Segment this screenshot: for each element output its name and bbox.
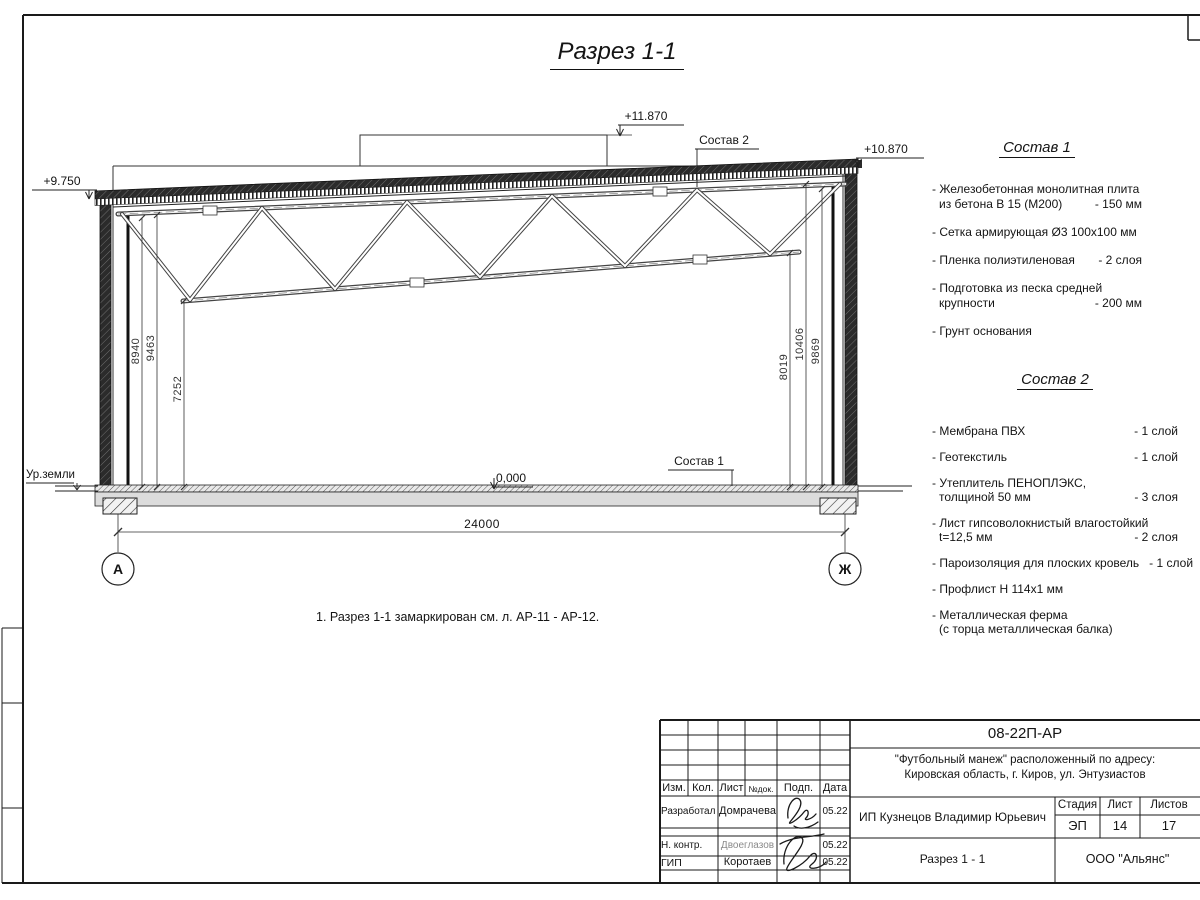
composition-row: - Утеплитель ПЕНОПЛЭКС, — [932, 476, 1178, 490]
composition-text: - Утеплитель ПЕНОПЛЭКС, — [932, 476, 1086, 490]
composition-row: - Железобетонная монолитная плита — [932, 182, 1142, 197]
composition-text: из бетона В 15 (М200) — [939, 197, 1062, 212]
composition-item: - Металлическая ферма(с торца металличес… — [932, 608, 1178, 636]
composition-item: - Профлист Н 114x1 мм — [932, 582, 1178, 596]
composition-row: крупности- 200 мм — [932, 296, 1142, 311]
composition-value: - 1 слой — [1124, 424, 1178, 438]
composition-row: - Профлист Н 114x1 мм — [932, 582, 1178, 596]
floor-slab — [55, 485, 912, 514]
dimension-right-3: 9869 — [810, 326, 822, 376]
elevation-label-parapet: +11.870 — [612, 109, 680, 123]
stamp-col-dok: №док. — [745, 784, 777, 794]
composition-text: - Пароизоляция для плоских кровель — [932, 556, 1139, 570]
stamp-sheets-value: 17 — [1140, 818, 1198, 833]
stamp-sheet-title: Разрез 1 - 1 — [850, 852, 1055, 866]
steel-truss — [118, 184, 845, 301]
stamp-sheets-label: Листов — [1140, 799, 1198, 811]
vertical-dimensions — [139, 181, 825, 490]
stamp-role-1: Н. контр. — [661, 840, 717, 851]
stamp-client: ИП Кузнецов Владимир Юрьевич — [850, 810, 1055, 824]
composition-item: - Пленка полиэтиленовая- 2 слоя — [932, 253, 1142, 268]
composition-row: - Лист гипсоволокнистый влагостойкий — [932, 516, 1178, 530]
stamp-col-list: Лист — [718, 782, 745, 794]
stamp-col-kol: Кол. — [688, 782, 718, 794]
composition-row: - Подготовка из песка средней — [932, 281, 1142, 296]
stamp-name-1: Двоеглазов — [718, 840, 777, 851]
composition-item: - Пароизоляция для плоских кровель- 1 сл… — [932, 556, 1178, 570]
composition-text: - Профлист Н 114x1 мм — [932, 582, 1063, 596]
dimension-left-3: 7252 — [172, 364, 184, 414]
composition-text: крупности — [939, 296, 995, 311]
composition-row: - Мембрана ПВХ- 1 слой — [932, 424, 1178, 438]
composition-item: - Грунт основания — [932, 324, 1142, 339]
stamp-sheet-label: Лист — [1100, 799, 1140, 811]
composition-text: - Грунт основания — [932, 324, 1032, 339]
composition-value: - 2 слоя — [1124, 530, 1178, 544]
page-title: Разрез 1-1 — [467, 38, 767, 70]
stamp-stage-label: Стадия — [1055, 799, 1100, 811]
composition-value: - 1 слой — [1139, 556, 1193, 570]
composition-item: - Мембрана ПВХ- 1 слой — [932, 424, 1178, 438]
composition-list-1: Состав 1 - Железобетонная монолитная пли… — [932, 140, 1142, 352]
stamp-name-2: Коротаев — [718, 856, 777, 868]
composition-text: - Лист гипсоволокнистый влагостойкий — [932, 516, 1148, 530]
signature-icon — [774, 830, 830, 878]
stamp-company: ООО "Альянс" — [1055, 852, 1200, 866]
composition-value: - 200 мм — [1085, 296, 1142, 311]
page-title-text: Разрез 1-1 — [550, 38, 685, 70]
signature-icon — [780, 792, 824, 832]
composition-text: - Пленка полиэтиленовая — [932, 253, 1075, 268]
composition-text: - Сетка армирующая Ø3 100x100 мм — [932, 225, 1137, 240]
composition-row: - Металлическая ферма — [932, 608, 1178, 622]
axis-circles — [102, 553, 861, 585]
stamp-name-0: Домрачева — [718, 805, 777, 817]
axis-label-left: А — [103, 561, 133, 577]
stamp-doc-number: 08-22П-АР — [850, 725, 1200, 742]
composition-item: - Геотекстиль- 1 слой — [932, 450, 1178, 464]
composition-text: - Металлическая ферма — [932, 608, 1068, 622]
composition-row: - Грунт основания — [932, 324, 1142, 339]
composition-item: - Сетка армирующая Ø3 100x100 мм — [932, 225, 1142, 240]
stamp-stage-value: ЭП — [1055, 818, 1100, 833]
note-text: 1. Разрез 1-1 замаркирован см. л. АР-11 … — [316, 610, 599, 624]
callout-sostav1: Состав 1 — [665, 454, 733, 468]
dimension-left-1: 8940 — [130, 326, 142, 376]
stamp-role-2: ГИП — [661, 857, 717, 869]
composition-item: - Утеплитель ПЕНОПЛЭКС,толщиной 50 мм- 3… — [932, 476, 1178, 504]
composition-row: толщиной 50 мм- 3 слоя — [932, 490, 1178, 504]
composition-text: t=12,5 мм — [939, 530, 993, 544]
composition-value: - 2 слоя — [1088, 253, 1142, 268]
composition-text: - Геотекстиль — [932, 450, 1007, 464]
composition-item: - Железобетонная монолитная плитаиз бето… — [932, 182, 1142, 212]
composition-item: - Лист гипсоволокнистый влагостойкийt=12… — [932, 516, 1178, 544]
composition-value: - 3 слоя — [1124, 490, 1178, 504]
composition-item: - Подготовка из песка среднейкрупности- … — [932, 281, 1142, 311]
composition-heading: Состав 1 — [932, 140, 1142, 158]
composition-row: - Пароизоляция для плоских кровель- 1 сл… — [932, 556, 1178, 570]
elevation-label-floor: 0,000 — [486, 471, 536, 485]
composition-heading-text: Состав 1 — [999, 140, 1075, 158]
elevation-label-roof-right: +10.870 — [852, 142, 920, 156]
dimension-span: 24000 — [450, 517, 514, 531]
composition-text: - Железобетонная монолитная плита — [932, 182, 1139, 197]
composition-row: из бетона В 15 (М200)- 150 мм — [932, 197, 1142, 212]
stamp-project-line1: "Футбольный манеж" расположенный по адре… — [850, 754, 1200, 766]
ground-level-label: Ур.земли — [26, 469, 75, 481]
composition-text: (с торца металлическая балка) — [939, 622, 1113, 636]
stamp-sheet-value: 14 — [1100, 818, 1140, 833]
composition-value: - 150 мм — [1085, 197, 1142, 212]
composition-row: - Пленка полиэтиленовая- 2 слоя — [932, 253, 1142, 268]
dimension-left-2: 9463 — [145, 323, 157, 373]
composition-value: - 1 слой — [1124, 450, 1178, 464]
stamp-col-izm: Изм. — [660, 782, 688, 794]
composition-text: - Мембрана ПВХ — [932, 424, 1025, 438]
stamp-project-line2: Кировская область, г. Киров, ул. Энтузиа… — [850, 769, 1200, 781]
dimension-right-2: 10406 — [794, 319, 806, 369]
composition-text: - Подготовка из песка средней — [932, 281, 1102, 296]
composition-heading-text: Состав 2 — [1017, 372, 1093, 390]
drawing-sheet: Разрез 1-1 +9.750 +11.870 +10.870 0,000 … — [0, 0, 1200, 900]
composition-heading: Состав 2 — [932, 372, 1178, 390]
elevation-label-roof-left: +9.750 — [30, 174, 94, 188]
composition-row: - Геотекстиль- 1 слой — [932, 450, 1178, 464]
composition-list-2: Состав 2 - Мембрана ПВХ- 1 слой- Геотекс… — [932, 372, 1178, 648]
composition-text: толщиной 50 мм — [939, 490, 1031, 504]
stamp-role-0: Разработал — [661, 806, 717, 817]
composition-row: - Сетка армирующая Ø3 100x100 мм — [932, 225, 1142, 240]
dimension-right-1: 8019 — [778, 342, 790, 392]
stamp-col-data: Дата — [820, 782, 850, 794]
composition-row: t=12,5 мм- 2 слоя — [932, 530, 1178, 544]
stamp-date-0: 05.22 — [820, 806, 850, 817]
composition-row: (с торца металлическая балка) — [932, 622, 1178, 636]
axis-label-right: Ж — [830, 561, 860, 577]
callout-sostav2: Состав 2 — [690, 133, 758, 147]
